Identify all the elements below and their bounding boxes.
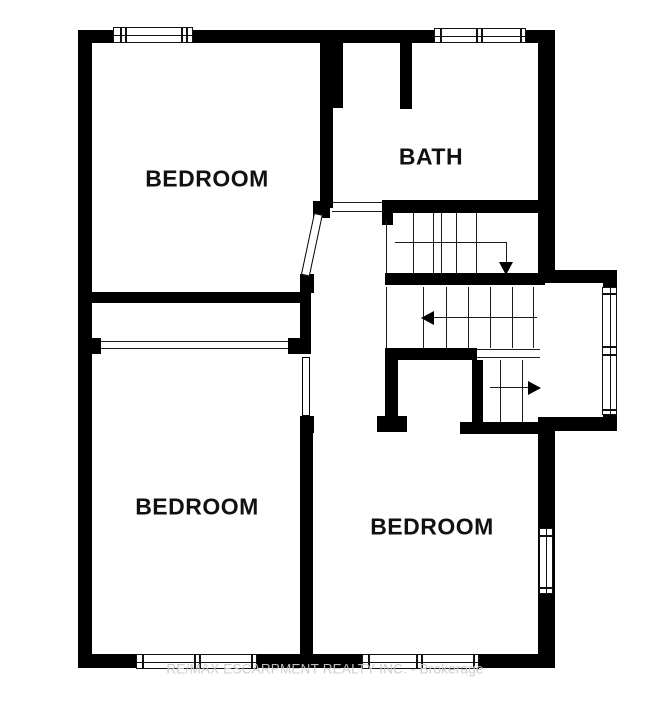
window-frame-bar	[603, 409, 616, 411]
window-frame-bar	[540, 535, 552, 537]
window-top-left-bedroom	[113, 27, 193, 43]
window-frame-bar	[181, 28, 183, 42]
door-bottom-left-bedroom	[302, 357, 310, 416]
window-frame-bar	[481, 29, 483, 42]
window-bath	[434, 28, 526, 43]
window-frame-bar	[186, 28, 188, 42]
window-frame-bar	[603, 346, 616, 348]
window-frame-bar	[540, 587, 552, 589]
window-frame-bar	[142, 655, 144, 668]
room-label-bedroom-bottom-left: BEDROOM	[135, 494, 259, 521]
room-label-bath: BATH	[399, 144, 463, 171]
room-labels-layer: BEDROOMBATHBEDROOMBEDROOM	[0, 0, 650, 703]
window-frame-bar	[476, 29, 478, 42]
window-midline	[435, 36, 525, 37]
stair-arrow-right	[528, 381, 541, 395]
room-label-bedroom-top-left: BEDROOM	[145, 166, 269, 193]
watermark-text: RE/MAX ESCARPMENT REALTY INC. - Brokerag…	[166, 662, 483, 677]
window-frame-bar	[520, 29, 522, 42]
window-stair-landing	[602, 287, 617, 415]
window-frame-bar	[603, 354, 616, 356]
room-label-bedroom-bottom-right: BEDROOM	[370, 514, 494, 541]
window-right-bedroom	[539, 528, 553, 594]
stair-arrow-down	[499, 262, 513, 275]
floor-plan: BEDROOMBATHBEDROOMBEDROOM RE/MAX ESCARPM…	[0, 0, 650, 703]
window-midline	[610, 288, 611, 414]
window-frame-bar	[120, 28, 122, 42]
stair-arrow-left	[421, 311, 434, 325]
window-frame-bar	[125, 28, 127, 42]
window-frame-bar	[440, 29, 442, 42]
window-midline	[546, 529, 547, 593]
window-frame-bar	[603, 293, 616, 295]
